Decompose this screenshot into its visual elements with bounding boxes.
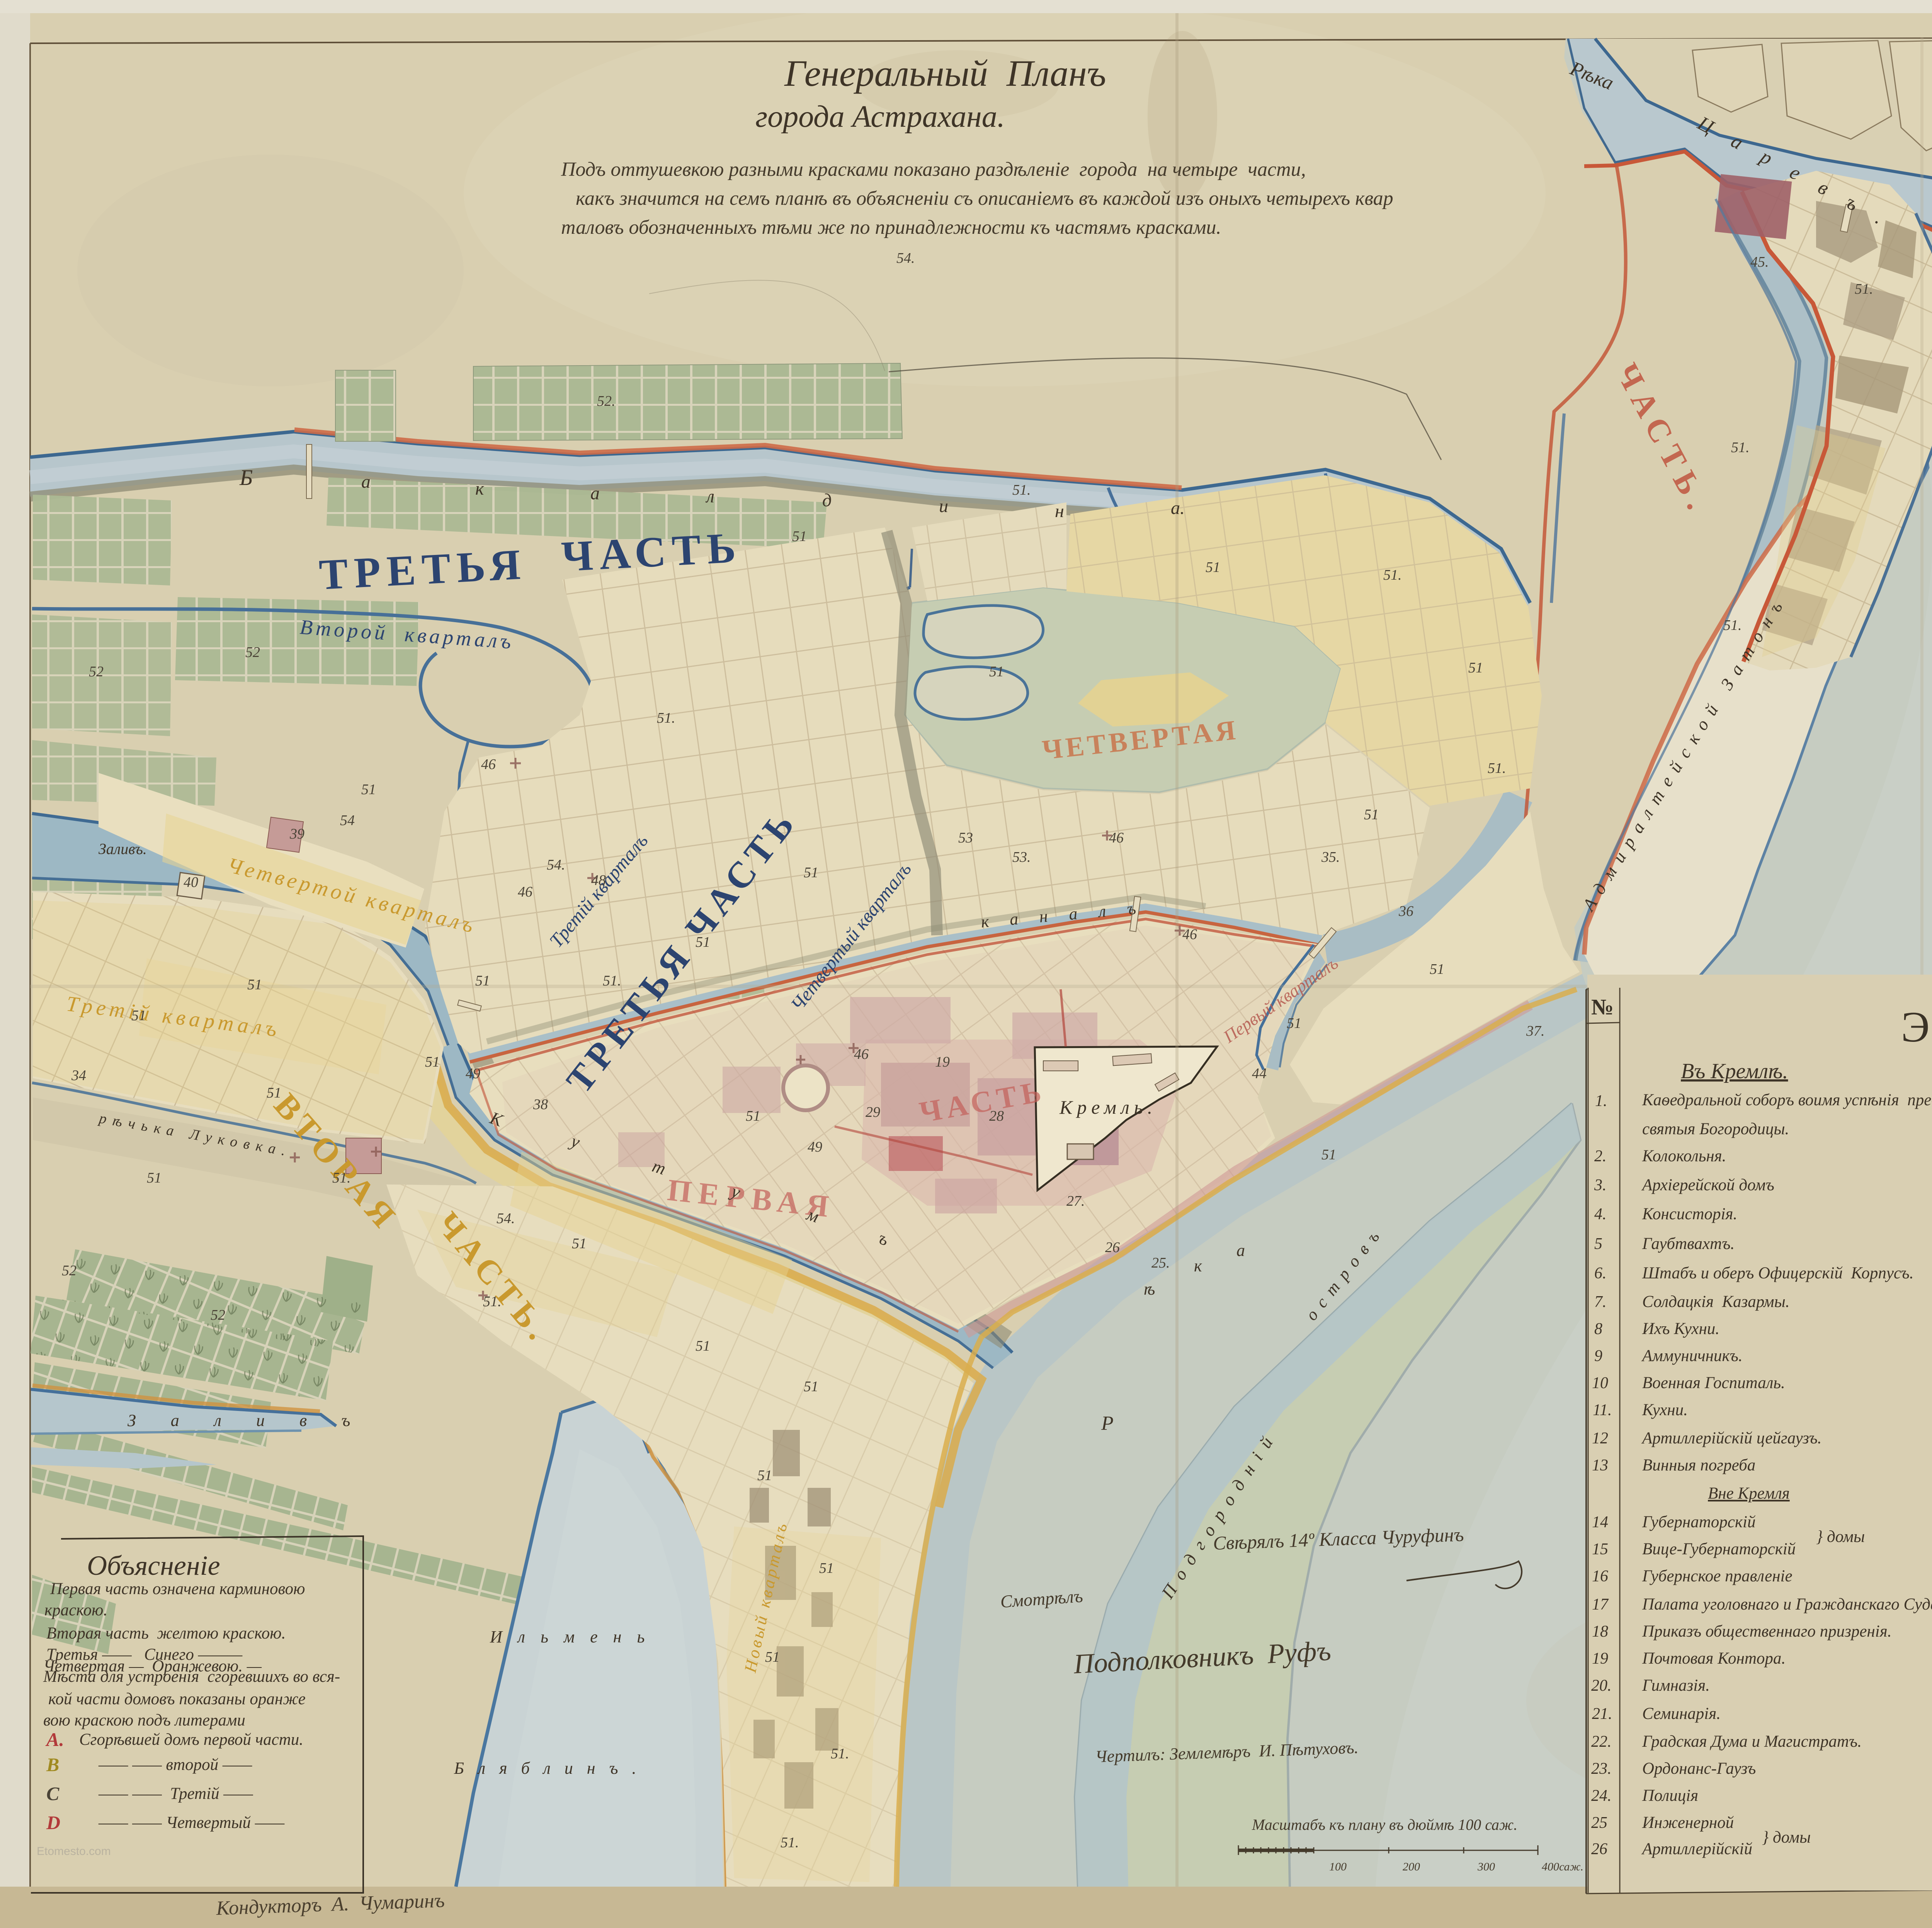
svg-text:9: 9 xyxy=(1594,1347,1602,1365)
svg-text:С: С xyxy=(46,1783,60,1804)
svg-text:Каѳедральной соборъ воимя успѣ: Каѳедральной соборъ воимя успѣнія пре- xyxy=(1642,1091,1932,1109)
svg-text:34: 34 xyxy=(71,1067,86,1084)
svg-text:№: № xyxy=(1591,994,1614,1019)
svg-text:11.: 11. xyxy=(1593,1401,1612,1419)
svg-text:Артиллерійскій: Артиллерійскій xyxy=(1641,1840,1753,1858)
svg-text:51: 51 xyxy=(361,781,376,798)
svg-text:Ильмень: Ильмень xyxy=(490,1627,660,1646)
svg-text:Etomesto.com: Etomesto.com xyxy=(37,1845,111,1858)
svg-text:д: д xyxy=(822,490,832,511)
svg-text:51: 51 xyxy=(572,1235,587,1252)
svg-text:—— —— Четвертый ——: —— —— Четвертый —— xyxy=(98,1814,285,1832)
svg-text:51.: 51. xyxy=(1723,617,1742,633)
svg-text:Военная Госпиталь.: Военная Госпиталь. xyxy=(1642,1374,1785,1392)
svg-text:Ордонанс-Гаузъ: Ордонанс-Гаузъ xyxy=(1642,1760,1756,1778)
svg-text:—— —— второй ——: —— —— второй —— xyxy=(98,1756,252,1774)
svg-text:52: 52 xyxy=(211,1307,225,1323)
svg-text:22.: 22. xyxy=(1591,1733,1612,1751)
svg-text:Консисторія.: Консисторія. xyxy=(1642,1205,1737,1223)
svg-text:Почтовая Контора.: Почтовая Контора. xyxy=(1642,1649,1786,1668)
svg-text:51: 51 xyxy=(765,1649,780,1665)
svg-text:54: 54 xyxy=(340,812,355,829)
svg-text:Губернское правленіе: Губернское правленіе xyxy=(1642,1567,1793,1585)
svg-text:Артиллерійскій цейгаузъ.: Артиллерійскій цейгаузъ. xyxy=(1641,1429,1821,1447)
svg-text:16: 16 xyxy=(1592,1567,1608,1585)
svg-text:51.: 51. xyxy=(1012,482,1031,498)
svg-text:51.: 51. xyxy=(1731,439,1750,456)
svg-text:25.: 25. xyxy=(1151,1255,1170,1271)
svg-text:53.: 53. xyxy=(1012,849,1031,865)
svg-text:13: 13 xyxy=(1592,1457,1608,1474)
svg-text:Ихъ Кухни.: Ихъ Кухни. xyxy=(1642,1320,1719,1338)
svg-text:6.: 6. xyxy=(1594,1264,1607,1282)
svg-text:Кухни.: Кухни. xyxy=(1642,1401,1688,1419)
svg-text:51: 51 xyxy=(1287,1015,1301,1031)
svg-text:Архіерейской домъ: Архіерейской домъ xyxy=(1641,1176,1774,1194)
svg-text:Инженерной: Инженерной xyxy=(1642,1814,1734,1832)
svg-text:} домы: } домы xyxy=(1816,1528,1865,1546)
svg-text:51: 51 xyxy=(819,1560,834,1576)
svg-text:Сгорѣвшей домъ первой части.: Сгорѣвшей домъ первой части. xyxy=(79,1731,303,1749)
svg-text:15: 15 xyxy=(1592,1540,1608,1558)
svg-text:1.: 1. xyxy=(1595,1092,1607,1110)
svg-text:Экспликація.: Экспликація. xyxy=(1901,1003,1932,1051)
svg-text:51: 51 xyxy=(147,1170,162,1186)
svg-text:48: 48 xyxy=(591,872,606,888)
svg-text:51: 51 xyxy=(1206,559,1220,575)
svg-text:46: 46 xyxy=(481,756,496,773)
svg-text:а: а xyxy=(590,483,600,504)
svg-text:Гаубтвахтъ.: Гаубтвахтъ. xyxy=(1642,1235,1735,1253)
svg-text:28: 28 xyxy=(989,1108,1004,1124)
svg-text:39: 39 xyxy=(289,826,304,842)
svg-text:к: к xyxy=(1194,1256,1202,1275)
svg-text:52: 52 xyxy=(89,664,104,680)
svg-text:51: 51 xyxy=(425,1054,440,1070)
svg-text:49: 49 xyxy=(466,1065,480,1082)
svg-text:26: 26 xyxy=(1591,1840,1607,1858)
svg-text:24.: 24. xyxy=(1591,1787,1612,1805)
svg-text:города Астрахана.: города Астрахана. xyxy=(755,100,1005,134)
svg-text:35.: 35. xyxy=(1321,849,1340,865)
svg-text:вою краскою подъ литерами: вою краскою подъ литерами xyxy=(43,1711,245,1729)
svg-text:18: 18 xyxy=(1592,1623,1608,1640)
svg-text:300: 300 xyxy=(1477,1860,1495,1873)
svg-text:В: В xyxy=(46,1754,59,1775)
svg-text:51.: 51. xyxy=(657,710,675,726)
svg-text:21.: 21. xyxy=(1592,1705,1612,1723)
svg-text:44: 44 xyxy=(1252,1065,1267,1082)
svg-text:51: 51 xyxy=(475,973,490,989)
svg-text:200: 200 xyxy=(1403,1860,1420,1873)
svg-text:л: л xyxy=(705,486,714,507)
svg-text:26: 26 xyxy=(1105,1239,1120,1256)
svg-text:А.: А. xyxy=(45,1729,64,1750)
svg-text:Губернаторскій: Губернаторскій xyxy=(1642,1513,1756,1531)
svg-text:51.: 51. xyxy=(332,1170,351,1186)
svg-text:51.: 51. xyxy=(1488,760,1506,776)
svg-text:10: 10 xyxy=(1592,1374,1608,1392)
svg-text:51: 51 xyxy=(792,528,807,545)
svg-text:ЧАСТЬ: ЧАСТЬ xyxy=(560,524,743,581)
svg-text:Заливъ.: Заливъ. xyxy=(99,840,147,858)
svg-text:12: 12 xyxy=(1592,1429,1608,1447)
svg-text:Мѣста для устроенія сгоревших: Мѣста для устроенія сгоревшихъ во вся- xyxy=(43,1668,340,1686)
svg-text:таловъ обозначенныхъ тѣми же п: таловъ обозначенныхъ тѣми же по принадле… xyxy=(561,216,1221,238)
svg-text:51: 51 xyxy=(267,1085,281,1101)
svg-text:51: 51 xyxy=(1364,807,1379,823)
svg-text:51: 51 xyxy=(1468,660,1483,676)
svg-text:Колокольня.: Колокольня. xyxy=(1642,1147,1726,1165)
svg-text:Приказъ общественнаго призрені: Приказъ общественнаго призренія. xyxy=(1642,1622,1891,1640)
svg-text:Солдацкія Казармы.: Солдацкія Казармы. xyxy=(1642,1293,1789,1311)
svg-text:какъ значится на семъ планѣ въ: какъ значится на семъ планѣ въ объяснені… xyxy=(576,187,1393,209)
svg-text:51: 51 xyxy=(757,1467,772,1484)
svg-text:Гимназія.: Гимназія. xyxy=(1642,1676,1710,1695)
svg-text:52: 52 xyxy=(62,1263,77,1279)
svg-text:51: 51 xyxy=(696,1338,710,1354)
svg-text:Палата уголовнаго и Гражданска: Палата уголовнаго и Гражданскаго Суда. xyxy=(1642,1595,1932,1613)
svg-text:8: 8 xyxy=(1594,1320,1602,1338)
svg-text:Заливъ: Заливъ xyxy=(128,1411,385,1430)
svg-text:27.: 27. xyxy=(1066,1193,1085,1209)
svg-text:51: 51 xyxy=(804,864,818,881)
svg-text:Вторая часть желтою краскою.: Вторая часть желтою краскою. xyxy=(46,1624,286,1642)
svg-text:37.: 37. xyxy=(1526,1023,1545,1039)
svg-text:D: D xyxy=(46,1812,60,1833)
svg-text:—— —— Третій ——: —— —— Третій —— xyxy=(98,1785,253,1803)
svg-text:Винныя погреба: Винныя погреба xyxy=(1642,1456,1755,1474)
svg-text:46: 46 xyxy=(518,884,532,900)
svg-text:20.: 20. xyxy=(1591,1677,1612,1695)
svg-text:51.: 51. xyxy=(1383,567,1402,583)
svg-text:53: 53 xyxy=(958,830,973,846)
svg-text:54.: 54. xyxy=(896,250,915,266)
svg-text:Полиція: Полиція xyxy=(1642,1787,1698,1805)
svg-text:Масштабъ къ плану въ дюймѣ 100: Масштабъ къ плану въ дюймѣ 100 саж. xyxy=(1252,1816,1517,1833)
svg-text:25: 25 xyxy=(1591,1814,1607,1832)
svg-text:38: 38 xyxy=(533,1096,548,1113)
svg-text:19: 19 xyxy=(935,1054,950,1070)
svg-text:3.: 3. xyxy=(1594,1176,1607,1194)
svg-text:ѣ: ѣ xyxy=(1144,1280,1155,1298)
svg-text:36: 36 xyxy=(1398,903,1413,919)
svg-text:2.: 2. xyxy=(1594,1147,1607,1165)
svg-text:46: 46 xyxy=(1109,830,1124,846)
svg-text:14: 14 xyxy=(1592,1513,1608,1531)
svg-text:Кремль.: Кремль. xyxy=(1059,1096,1157,1118)
svg-text:51.: 51. xyxy=(781,1834,799,1851)
svg-text:краскою.: краскою. xyxy=(44,1601,107,1619)
svg-text:Р: Р xyxy=(1101,1412,1114,1435)
svg-text:а.: а. xyxy=(1171,498,1185,518)
svg-text:и: и xyxy=(939,496,948,516)
svg-text:51: 51 xyxy=(696,934,710,950)
svg-text:7.: 7. xyxy=(1594,1293,1607,1311)
svg-text:400саж.: 400саж. xyxy=(1542,1860,1583,1873)
svg-text:19: 19 xyxy=(1592,1650,1608,1668)
svg-text:51: 51 xyxy=(746,1108,760,1124)
svg-text:Градская Дума и Магистратъ.: Градская Дума и Магистратъ. xyxy=(1642,1732,1862,1751)
svg-text:52: 52 xyxy=(245,644,260,660)
svg-text:} домы: } домы xyxy=(1762,1828,1811,1846)
svg-text:51: 51 xyxy=(247,977,262,993)
svg-text:Въ Кремлѣ.: Въ Кремлѣ. xyxy=(1681,1059,1788,1083)
svg-text:Первая часть означена карминов: Первая часть означена карминовою xyxy=(50,1580,305,1598)
svg-text:51: 51 xyxy=(1430,961,1444,977)
svg-text:40: 40 xyxy=(184,874,198,890)
svg-text:29: 29 xyxy=(866,1104,880,1120)
svg-text:54.: 54. xyxy=(497,1210,515,1227)
svg-text:52.: 52. xyxy=(597,393,616,409)
svg-text:54.: 54. xyxy=(547,857,565,873)
svg-text:н: н xyxy=(1055,501,1064,521)
svg-text:Вице-Губернаторскій: Вице-Губернаторскій xyxy=(1642,1540,1796,1558)
svg-text:Подъ оттушевкою разными краска: Подъ оттушевкою разными красками показан… xyxy=(561,158,1306,180)
svg-text:51.: 51. xyxy=(1855,281,1873,297)
svg-text:51: 51 xyxy=(989,664,1004,680)
svg-text:Штабъ и оберъ Офицерскій Корп: Штабъ и оберъ Офицерскій Корпусъ. xyxy=(1642,1264,1914,1282)
svg-text:51.: 51. xyxy=(831,1746,849,1762)
svg-text:Семинарія.: Семинарія. xyxy=(1642,1705,1721,1723)
svg-text:17: 17 xyxy=(1592,1596,1609,1613)
svg-text:Б: Б xyxy=(239,465,253,490)
svg-text:51.: 51. xyxy=(483,1293,502,1310)
svg-text:Вне Кремля: Вне Кремля xyxy=(1708,1484,1790,1503)
svg-text:46: 46 xyxy=(1182,926,1197,943)
svg-text:Бляблинъ.: Бляблинъ. xyxy=(454,1759,650,1778)
svg-text:а: а xyxy=(1236,1241,1245,1260)
svg-text:51.: 51. xyxy=(603,973,621,989)
svg-text:кой части домовъ показаны оран: кой части домовъ показаны оранже xyxy=(48,1690,306,1708)
svg-text:51: 51 xyxy=(1321,1147,1336,1163)
svg-text:49: 49 xyxy=(808,1139,822,1155)
svg-text:51: 51 xyxy=(804,1378,818,1395)
svg-text:23.: 23. xyxy=(1591,1760,1612,1778)
svg-text:46: 46 xyxy=(854,1046,869,1062)
svg-text:4.: 4. xyxy=(1594,1205,1607,1223)
svg-text:Генеральный Планъ: Генеральный Планъ xyxy=(784,53,1106,94)
svg-text:Объясненіе: Объясненіе xyxy=(87,1550,220,1581)
svg-text:к: к xyxy=(475,478,484,499)
svg-text:Аммуничникъ.: Аммуничникъ. xyxy=(1641,1347,1743,1365)
svg-text:святыя Богородицы.: святыя Богородицы. xyxy=(1642,1120,1789,1138)
svg-text:5: 5 xyxy=(1594,1235,1602,1253)
svg-text:а: а xyxy=(361,471,371,492)
svg-text:45.: 45. xyxy=(1750,254,1769,270)
svg-text:51: 51 xyxy=(131,1007,146,1024)
svg-text:100: 100 xyxy=(1329,1860,1347,1873)
